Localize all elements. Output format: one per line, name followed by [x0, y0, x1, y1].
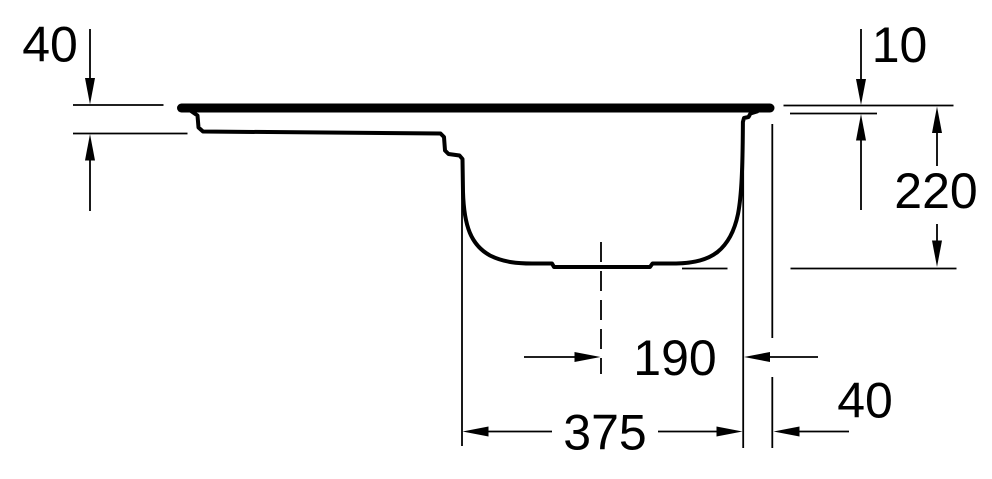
dim-190-right-point-arrow [575, 352, 601, 362]
dim-top-right-down-arrow [856, 79, 866, 105]
dim-label-190: 190 [633, 330, 716, 386]
dim-label-top-right: 10 [872, 17, 928, 73]
dimension-top-left: 40 [22, 17, 95, 212]
dimension-bottom-right: 40 [774, 373, 893, 437]
reference-lines [73, 105, 957, 448]
dimension-bowl-width: 375 [463, 405, 743, 461]
technical-drawing: 40 10 220 190 [0, 0, 992, 479]
dim-375-right-arrow [717, 427, 743, 437]
drawing-canvas: 40 10 220 190 [0, 0, 992, 479]
dimension-drain-offset: 190 [524, 330, 818, 386]
dim-depth-up-arrow [932, 107, 942, 134]
dim-top-left-up-arrow [85, 134, 95, 161]
sink-profile [177, 104, 775, 268]
bowl-profile-outline [191, 111, 757, 267]
rim-top-bar [177, 104, 775, 113]
dim-190-left-point-arrow [744, 352, 770, 362]
dim-label-top-left: 40 [22, 17, 78, 73]
dimension-right-depth: 220 [894, 107, 977, 268]
dim-375-left-arrow [463, 427, 489, 437]
dim-top-left-down-arrow [85, 78, 95, 105]
dim-label-375: 375 [563, 405, 646, 461]
dim-label-depth: 220 [894, 163, 977, 219]
dim-40br-left-point-arrow [774, 427, 800, 437]
dim-top-right-up-arrow [856, 114, 866, 141]
dim-label-bottom-right: 40 [837, 373, 893, 429]
dim-depth-down-arrow [932, 241, 942, 268]
